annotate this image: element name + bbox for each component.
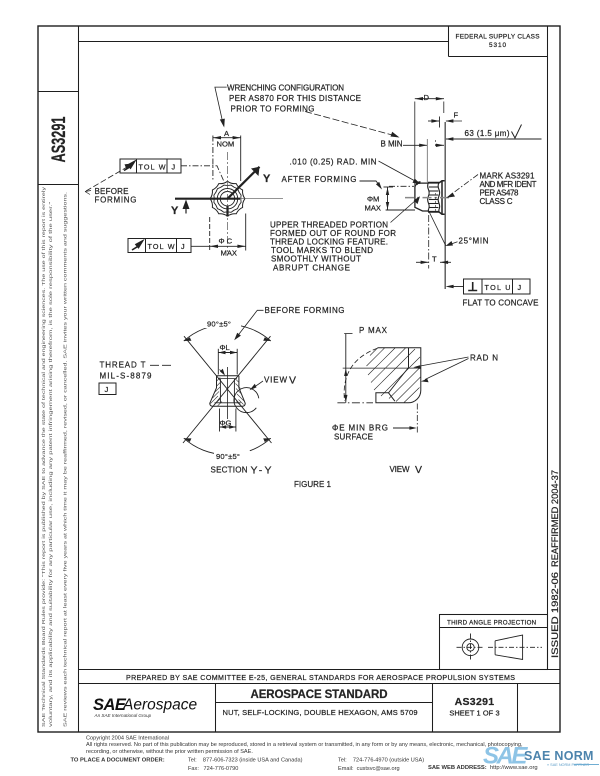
- svg-text:SAE Technical Standards Board: SAE Technical Standards Board Rules prov…: [41, 186, 46, 727]
- svg-text:A: A: [224, 129, 230, 138]
- svg-text:SAE: SAE: [483, 743, 528, 770]
- svg-text:Y: Y: [263, 173, 271, 185]
- svg-text:J: J: [518, 283, 522, 292]
- svg-text:FLAT TO CONCAVE: FLAT TO CONCAVE: [463, 299, 539, 308]
- svg-text:An SAE International Group: An SAE International Group: [94, 713, 152, 718]
- svg-text:FORMING: FORMING: [95, 196, 137, 205]
- svg-text:J: J: [181, 242, 185, 251]
- svg-text:25°MIN: 25°MIN: [459, 237, 489, 246]
- svg-text:PER AS870 FOR THIS DISTANCE: PER AS870 FOR THIS DISTANCE: [229, 94, 361, 103]
- svg-text:D: D: [424, 93, 430, 102]
- svg-text:AEROSPACE STANDARD: AEROSPACE STANDARD: [251, 689, 388, 701]
- svg-text:5310: 5310: [489, 42, 506, 49]
- svg-text:VIEW: VIEW: [390, 465, 410, 474]
- svg-text:Fax: 724-776-0790: Fax: 724-776-0790: [188, 766, 238, 772]
- svg-text:90°±5°: 90°±5°: [216, 452, 240, 461]
- svg-text:SMOOTHLY WITHOUT: SMOOTHLY WITHOUT: [271, 254, 361, 263]
- svg-text:63 (1.5 μm): 63 (1.5 μm): [465, 129, 510, 138]
- svg-text:RAD N: RAD N: [470, 353, 498, 362]
- svg-text:T: T: [432, 255, 437, 264]
- svg-text:BEFORE FORMING: BEFORE FORMING: [265, 306, 345, 315]
- svg-text:FEDERAL SUPPLY CLASS: FEDERAL SUPPLY CLASS: [456, 34, 540, 41]
- svg-text:ΦL: ΦL: [220, 343, 230, 352]
- svg-text:SECTION: SECTION: [211, 465, 248, 474]
- svg-text:THREAD T: THREAD T: [100, 360, 146, 369]
- svg-text:VIEW: VIEW: [264, 375, 287, 384]
- svg-text:ΦG: ΦG: [220, 418, 232, 427]
- svg-text:ΦM: ΦM: [367, 194, 379, 203]
- svg-text:THIRD ANGLE PROJECTION: THIRD ANGLE PROJECTION: [447, 619, 536, 626]
- svg-text:PREPARED BY SAE COMMITTEE E-25: PREPARED BY SAE COMMITTEE E-25, GENERAL …: [126, 674, 515, 682]
- svg-text:F: F: [454, 111, 459, 120]
- svg-text:TOL U: TOL U: [485, 283, 511, 292]
- svg-text:B MIN: B MIN: [381, 140, 403, 149]
- svg-text:J: J: [105, 385, 109, 394]
- svg-text:MAX: MAX: [365, 203, 381, 212]
- svg-text:Aerospace: Aerospace: [122, 697, 197, 714]
- svg-text:90°±5°: 90°±5°: [207, 320, 231, 329]
- svg-text:Y: Y: [171, 205, 179, 217]
- svg-text:MIL-S-8879: MIL-S-8879: [100, 371, 153, 380]
- svg-text:Tel: 724-776-4970 (outside: Tel: 724-776-4970 (outside USA): [338, 757, 424, 763]
- svg-text:V: V: [415, 464, 422, 476]
- svg-text:Y-Y: Y-Y: [251, 464, 272, 476]
- svg-text:AS3291: AS3291: [455, 696, 495, 708]
- svg-text:V: V: [289, 375, 296, 387]
- svg-text:ABRUPT CHANGE: ABRUPT CHANGE: [273, 264, 350, 273]
- svg-text:All rights reserved. No part o: All rights reserved. No part of this pub…: [86, 742, 523, 748]
- svg-text:CLASS C: CLASS C: [480, 197, 513, 206]
- svg-text:.010 (0.25) RAD. MIN: .010 (0.25) RAD. MIN: [290, 157, 377, 166]
- svg-text:Tel: 877-606-7323 (inside U: Tel: 877-606-7323 (inside USA and Canada…: [188, 757, 303, 763]
- svg-text:SAE reviews each technical rep: SAE reviews each technical report at lea…: [63, 192, 68, 727]
- svg-text:AFTER FORMING: AFTER FORMING: [282, 175, 357, 184]
- svg-text:MAX: MAX: [221, 248, 237, 257]
- svg-text:SURFACE: SURFACE: [334, 432, 373, 441]
- svg-text:SAE: SAE: [93, 696, 127, 714]
- svg-text:Φ C: Φ C: [219, 237, 233, 246]
- svg-text:PRIOR TO FORMING: PRIOR TO FORMING: [231, 105, 315, 114]
- svg-text:REAFFIRMED 2004-37: REAFFIRMED 2004-37: [550, 470, 560, 567]
- svg-text:Copyright 2004 SAE Internation: Copyright 2004 SAE International: [86, 736, 169, 742]
- svg-text:P MAX: P MAX: [359, 326, 388, 335]
- svg-text:AS3291: AS3291: [49, 116, 70, 162]
- svg-text:J: J: [172, 162, 176, 171]
- svg-text:WRENCHING CONFIGURATION: WRENCHING CONFIGURATION: [227, 83, 344, 92]
- svg-text:ΦE MIN BRG: ΦE MIN BRG: [332, 423, 388, 432]
- svg-text:FIGURE 1: FIGURE 1: [294, 480, 332, 489]
- svg-text:TOL W: TOL W: [139, 162, 166, 171]
- svg-text:SAE NORM: SAE NORM: [524, 749, 594, 763]
- svg-text:NUT, SELF-LOCKING, DOUBLE HEXA: NUT, SELF-LOCKING, DOUBLE HEXAGON, AMS 5…: [223, 708, 418, 717]
- svg-text:SHEET 1 OF 3: SHEET 1 OF 3: [449, 709, 499, 718]
- svg-text:voluntary, and its applicabili: voluntary, and its applicability and sui…: [48, 201, 53, 727]
- svg-text:NOM: NOM: [217, 139, 235, 148]
- svg-text:recording, or otherwise, witho: recording, or otherwise, without the pri…: [86, 749, 253, 755]
- svg-text:TO PLACE A DOCUMENT ORDER:: TO PLACE A DOCUMENT ORDER:: [71, 757, 165, 763]
- svg-text:ISSUED 1982-06: ISSUED 1982-06: [550, 572, 560, 658]
- svg-text:TOL W: TOL W: [148, 242, 175, 251]
- svg-text:Email: custsvc@sae.org: Email: custsvc@sae.org: [338, 766, 400, 772]
